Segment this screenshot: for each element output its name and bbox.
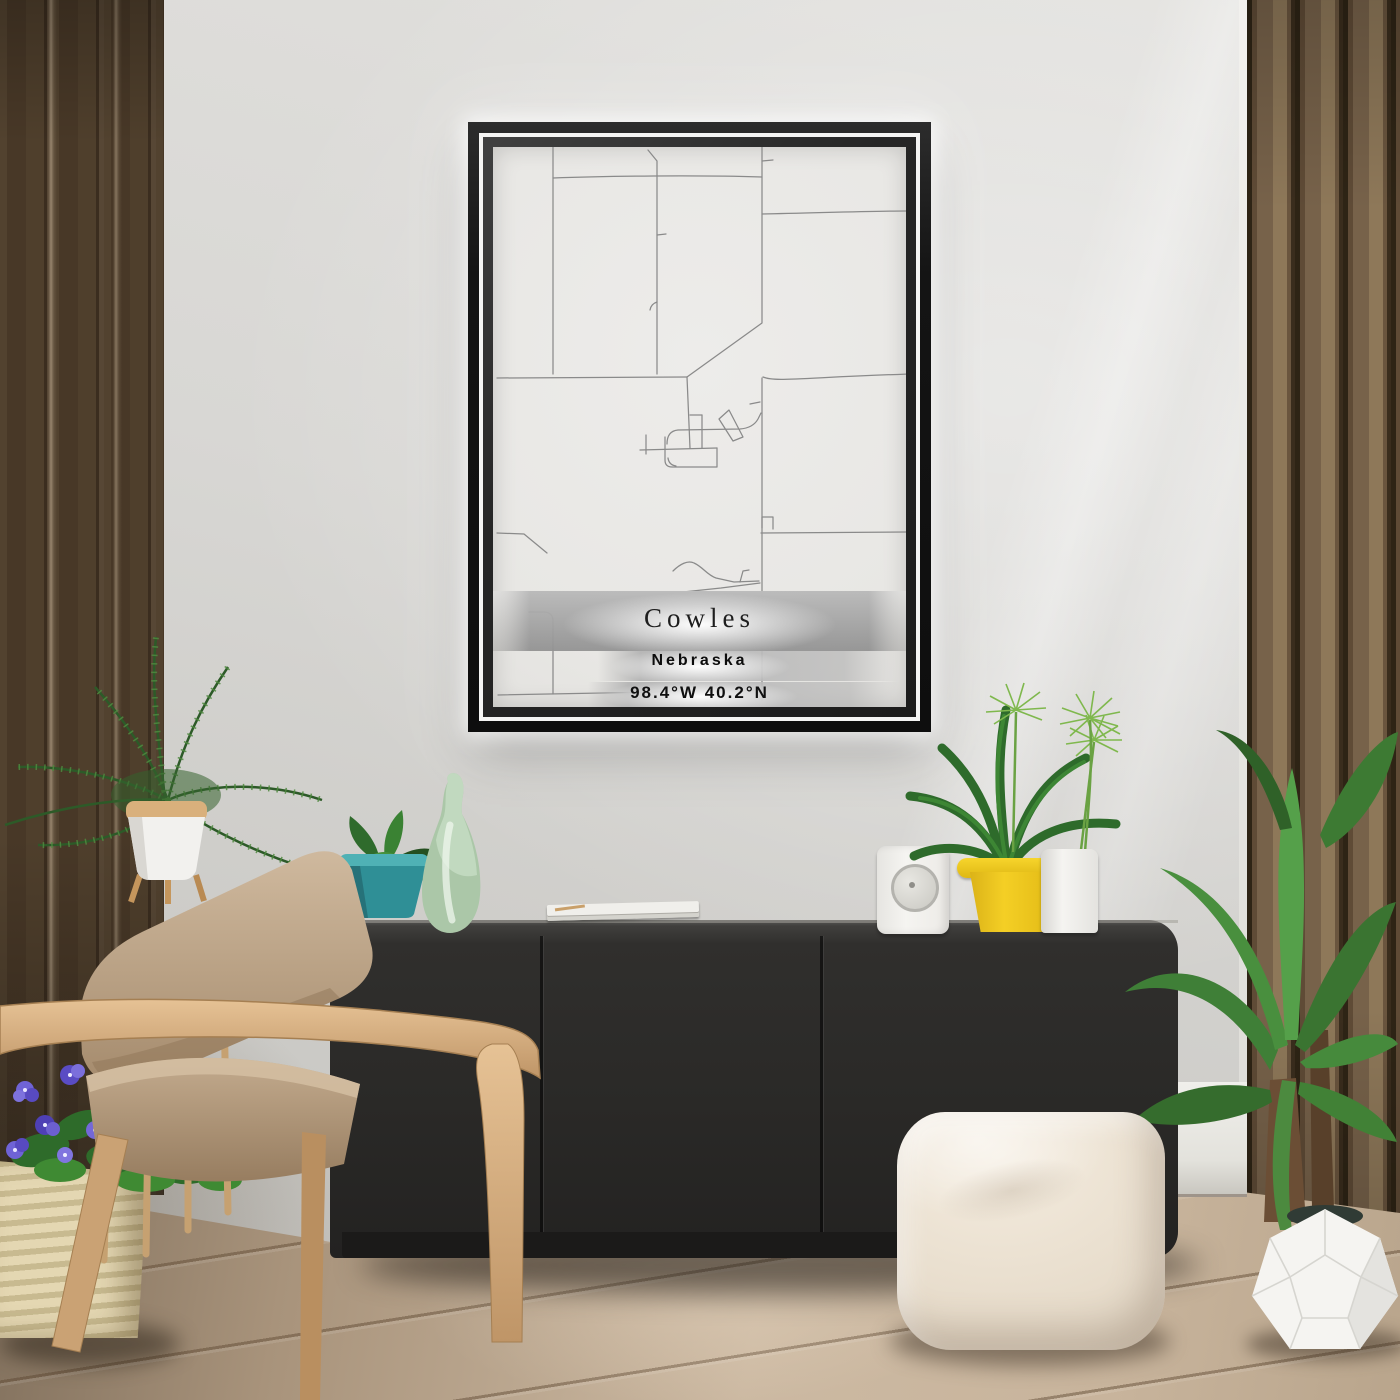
room-photo: Cowles Nebraska 98.4°W 40.2°N [0, 0, 1400, 1400]
dial-dot [909, 882, 915, 888]
geometric-white-planter [1240, 1200, 1400, 1360]
pouf [897, 1112, 1165, 1350]
sideboard-seam [820, 936, 823, 1232]
frame-inner-bevel: Cowles Nebraska 98.4°W 40.2°N [483, 137, 916, 717]
poster-title: Cowles [493, 603, 906, 634]
map-paper: Cowles Nebraska 98.4°W 40.2°N [493, 147, 906, 707]
poster-coordinates: 98.4°W 40.2°N [493, 683, 906, 703]
pouf-fold [916, 1132, 1111, 1257]
armchair [0, 830, 580, 1400]
white-cylinder-vase [1041, 849, 1098, 933]
frame-pinstripe: Cowles Nebraska 98.4°W 40.2°N [479, 133, 920, 721]
framed-map-poster: Cowles Nebraska 98.4°W 40.2°N [468, 122, 931, 732]
poster-subtitle: Nebraska [493, 652, 906, 670]
